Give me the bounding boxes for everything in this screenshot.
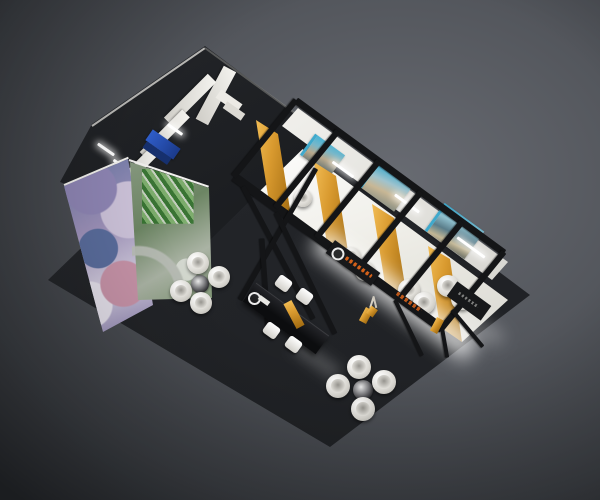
ball-chair [190,292,212,314]
fascia-fine-text [458,292,479,309]
ball-chair [351,397,375,421]
ball-chair [372,370,396,394]
ball-chair [187,252,209,274]
ball-chair [326,374,350,398]
chair-seat [192,257,204,269]
chair-seat [377,375,390,388]
chair-seat [356,402,369,415]
exhibition-stand-render [0,0,600,500]
chair-seat [352,360,365,373]
chair-seat [331,379,344,392]
ball-chair [208,266,230,288]
chair-seat [195,297,207,309]
ball-chair [347,355,371,379]
round-table [191,275,209,293]
chair-seat [175,285,187,297]
chair-seat [213,271,225,283]
ball-chair [170,280,192,302]
